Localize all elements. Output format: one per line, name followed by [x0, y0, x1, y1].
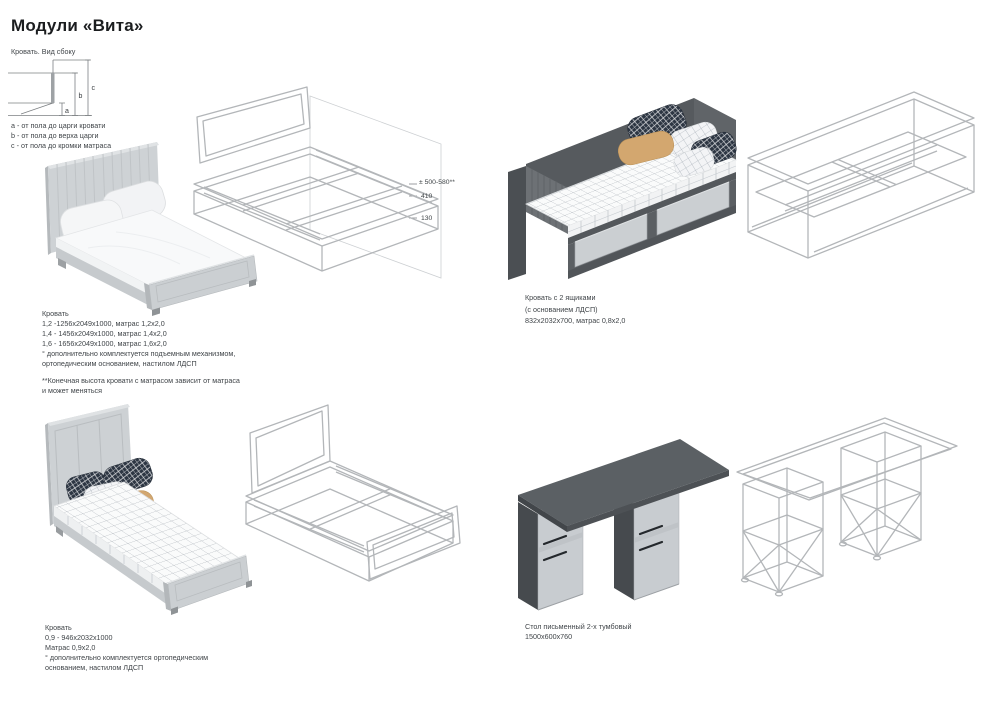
wireframe-dim-label: 130	[421, 215, 432, 222]
bed-drawers-specs: Кровать с 2 ящиками (с основанием ЛДСП) …	[525, 292, 625, 327]
spec-line: (с основанием ЛДСП)	[525, 304, 625, 316]
spec-line: 1,2 -1256х2049х1000, матрас 1,2х2,0	[42, 319, 240, 329]
spec-line: ортопедическим основанием, настилом ЛДСП	[42, 359, 240, 369]
bed-double-photo	[28, 136, 273, 316]
footnote-line: и может меняться	[42, 386, 240, 396]
desk-photo	[508, 430, 736, 612]
spec-line: Стол письменный 2-х тумбовый	[525, 622, 632, 632]
side-view-diagram: a b c	[8, 54, 103, 118]
bed-drawers-wireframe	[742, 86, 987, 271]
desk-specs: Стол письменный 2-х тумбовый 1500х600х76…	[525, 622, 632, 642]
spec-line: Кровать	[45, 623, 208, 633]
side-view-rail-bar	[51, 73, 55, 103]
spec-line: 1500х600х760	[525, 632, 632, 642]
spec-line: 1,6 - 1656х2049х1000, матрас 1,6х2,0	[42, 339, 240, 349]
desk-wireframe	[733, 410, 963, 605]
spec-line: 1,4 - 1456х2049х1000, матрас 1,4х2,0	[42, 329, 240, 339]
spec-line: Кровать с 2 ящиками	[525, 292, 625, 304]
legend-line: a - от пола до царги кровати	[11, 121, 111, 131]
spec-line: основанием, настилом ЛДСП	[45, 663, 208, 673]
wireframe-dim-label: 410	[421, 193, 432, 200]
spec-line: ° дополнительно комплектуется подъемным …	[42, 349, 240, 359]
dim-label-c: c	[92, 85, 96, 92]
footnote-line: **Конечная высота кровати с матрасом зав…	[42, 376, 240, 386]
bed-double-specs: Кровать 1,2 -1256х2049х1000, матрас 1,2х…	[42, 309, 240, 396]
wireframe-dim-label: ± 500-580**	[419, 179, 455, 186]
dim-label-a: a	[65, 108, 69, 115]
dim-label-b: b	[79, 93, 83, 100]
catalog-page: Модули «Вита» Кровать. Вид сбоку a b c a…	[0, 0, 999, 703]
bed-single-wireframe	[238, 393, 463, 623]
spec-line: 0,9 - 946х2032х1000	[45, 633, 208, 643]
spec-line: 832х2032х700, матрас 0,8х2,0	[525, 315, 625, 327]
dimension-plane	[310, 96, 441, 278]
bed-single-photo	[40, 400, 258, 622]
page-title: Модули «Вита»	[11, 16, 144, 36]
bed-drawers-photo	[498, 92, 753, 282]
bed-single-specs: Кровать 0,9 - 946х2032х1000 Матрас 0,9х2…	[45, 623, 208, 673]
spec-line: ° дополнительно комплектуется ортопедиче…	[45, 653, 208, 663]
spec-line: Матрас 0,9х2,0	[45, 643, 208, 653]
spec-line: Кровать	[42, 309, 240, 319]
